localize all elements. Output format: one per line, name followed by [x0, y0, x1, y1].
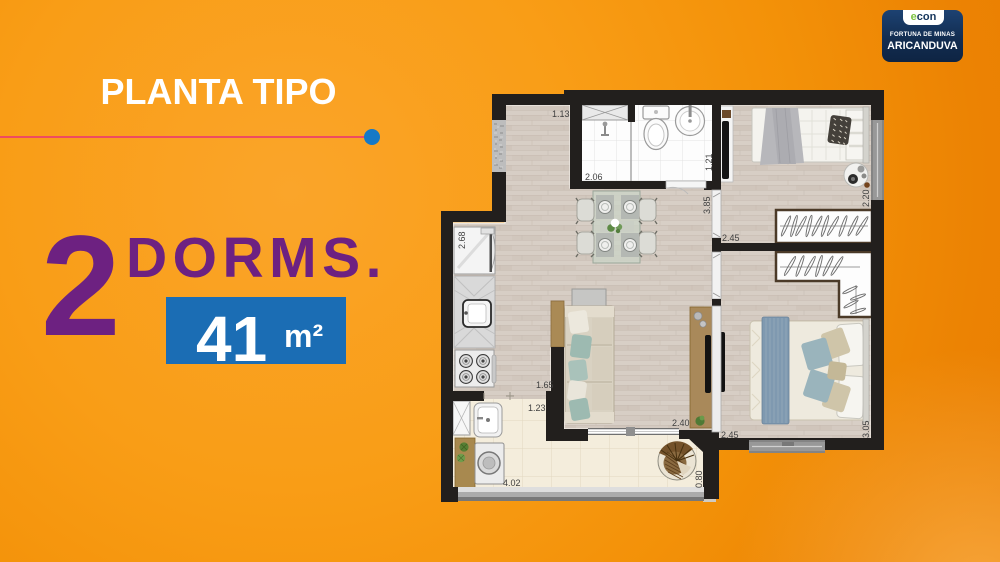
svg-text:3.05: 3.05 — [861, 420, 871, 438]
svg-text:2.68: 2.68 — [457, 231, 467, 249]
svg-text:4.02: 4.02 — [503, 478, 521, 488]
svg-text:2.45: 2.45 — [721, 430, 739, 440]
svg-text:1.65: 1.65 — [536, 380, 554, 390]
svg-text:2.40: 2.40 — [672, 418, 690, 428]
svg-text:2.06: 2.06 — [585, 172, 603, 182]
svg-text:1.21: 1.21 — [704, 153, 714, 171]
svg-text:3.85: 3.85 — [702, 196, 712, 214]
svg-text:2.20: 2.20 — [861, 189, 871, 207]
svg-text:1.23: 1.23 — [528, 403, 546, 413]
svg-text:1.13: 1.13 — [552, 109, 570, 119]
svg-text:2.45: 2.45 — [722, 233, 740, 243]
svg-text:0.80: 0.80 — [694, 470, 704, 488]
